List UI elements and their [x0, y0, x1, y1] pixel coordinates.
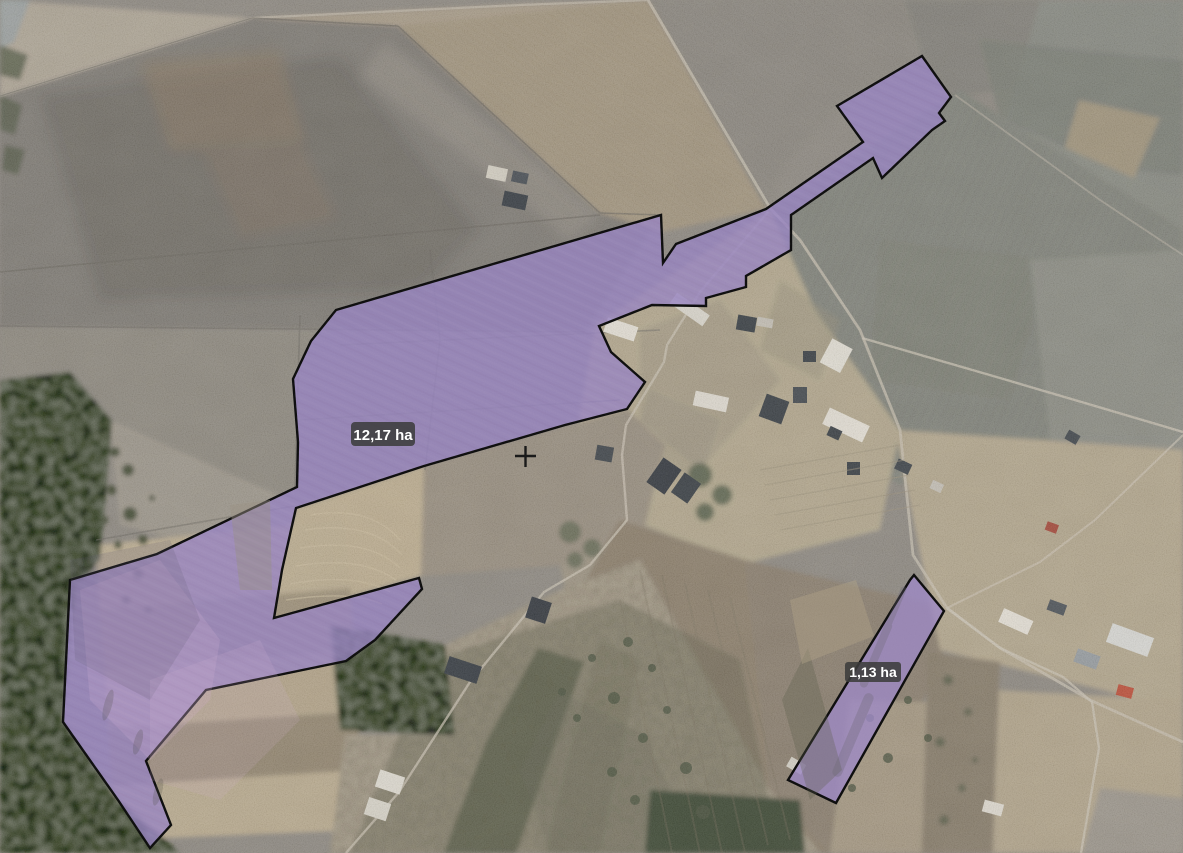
svg-text:12,17 ha: 12,17 ha [353, 427, 413, 444]
svg-text:1,13 ha: 1,13 ha [849, 664, 897, 680]
